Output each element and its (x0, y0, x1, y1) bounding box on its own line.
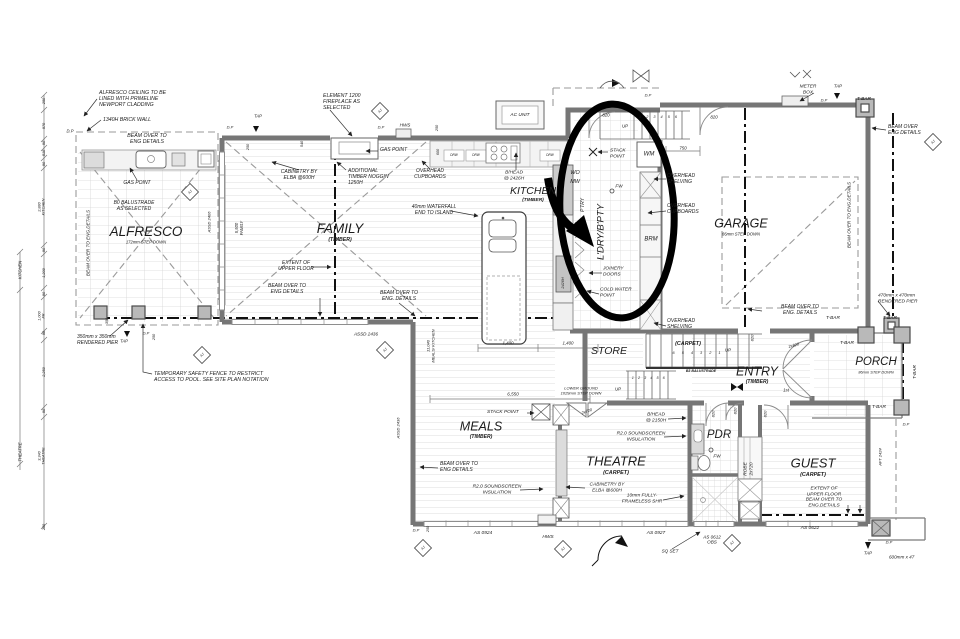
toilet (698, 456, 710, 471)
meter-marker-icon (790, 70, 811, 78)
alfresco-fixtures (82, 150, 216, 170)
floor-plan-page: ALFRESCO CEILING TO BE LINED WITH PRIMEL… (0, 0, 960, 639)
hws-unit (538, 515, 556, 524)
bbq (136, 151, 166, 168)
theatre-cabinetry (556, 430, 567, 496)
section-marker-icon (633, 70, 649, 82)
meter-box-rect (782, 96, 808, 106)
fireplace-box (331, 138, 378, 159)
floor-plan-drawing (0, 0, 960, 639)
hws-family-box (396, 129, 411, 138)
robe-fixtures (738, 437, 762, 519)
